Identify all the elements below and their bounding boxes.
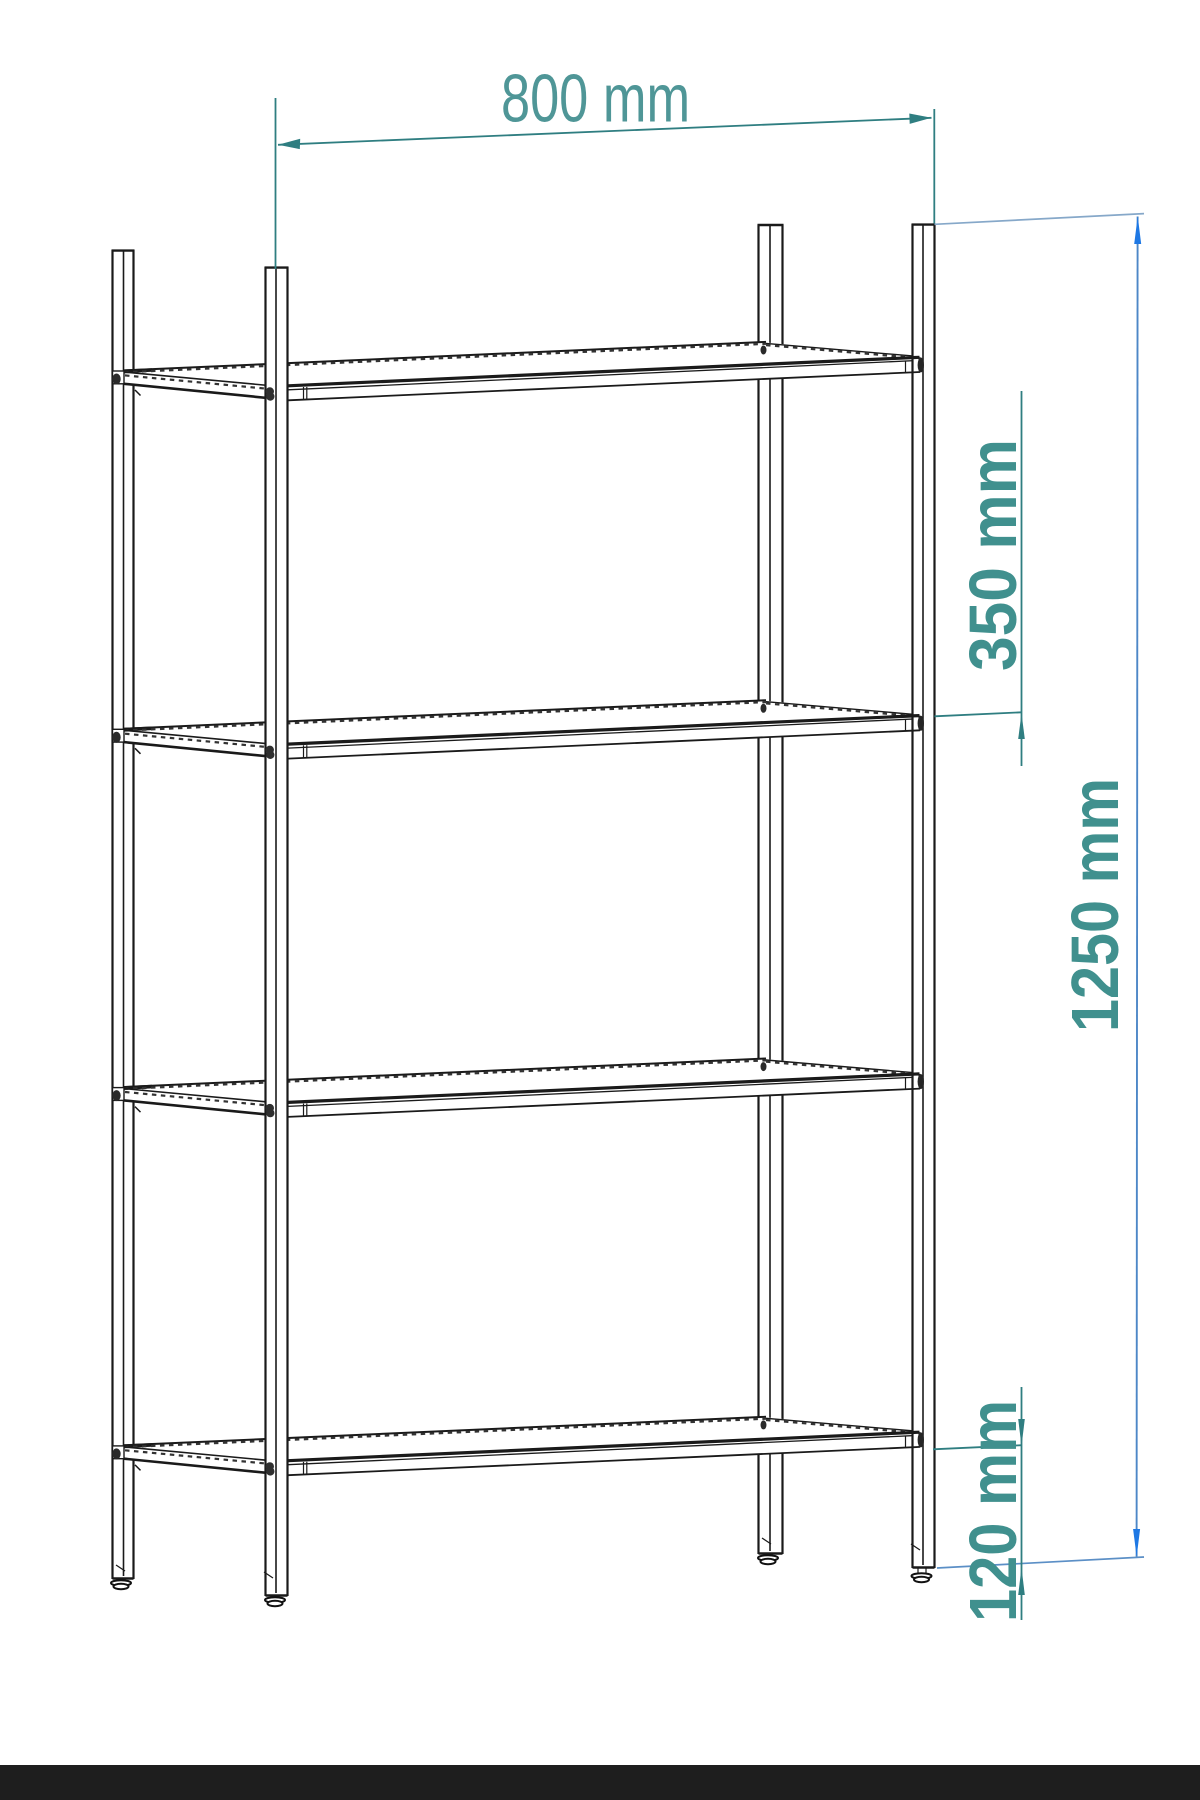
svg-text:1250 mm: 1250 mm	[1059, 778, 1133, 1032]
svg-text:800 mm: 800 mm	[501, 60, 690, 136]
svg-text:350 mm: 350 mm	[955, 439, 1031, 671]
svg-text:120 mm: 120 mm	[957, 1400, 1031, 1622]
